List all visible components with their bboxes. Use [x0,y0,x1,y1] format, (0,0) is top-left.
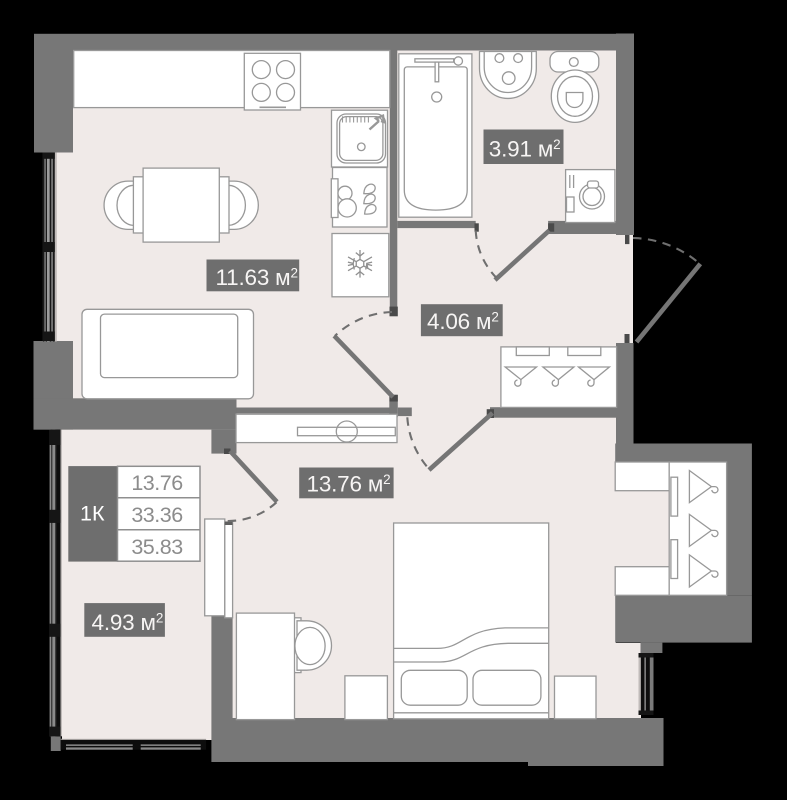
svg-text:11.63 м2: 11.63 м2 [216,265,298,290]
svg-text:13.76 м2: 13.76 м2 [307,472,391,497]
svg-text:1К: 1К [80,502,105,526]
svg-text:13.76: 13.76 [131,471,183,495]
svg-text:33.36: 33.36 [131,503,183,527]
svg-text:3.91 м2: 3.91 м2 [489,137,561,162]
svg-text:35.83: 35.83 [131,535,183,559]
svg-text:4.93 м2: 4.93 м2 [92,610,164,635]
svg-text:4.06 м2: 4.06 м2 [427,309,499,334]
